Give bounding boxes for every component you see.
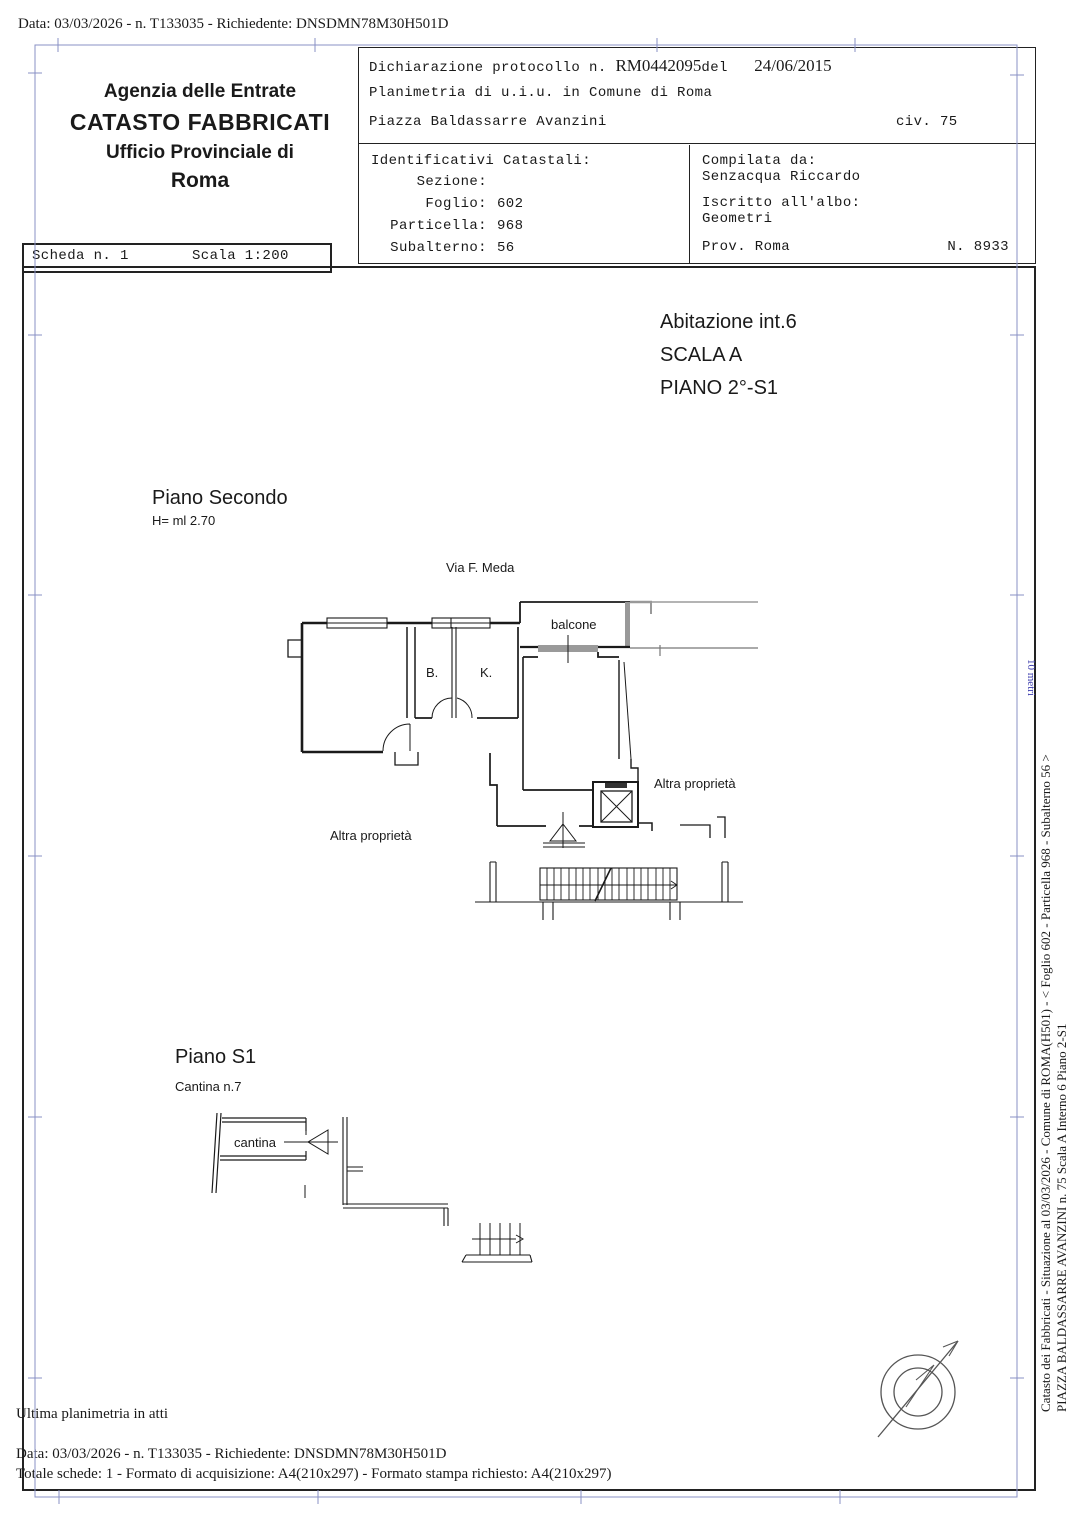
wall	[212, 1113, 221, 1193]
agency-line2: CATASTO FABBRICATI	[40, 106, 360, 139]
wall	[490, 862, 496, 902]
pianoS1-title: Piano S1	[175, 1046, 256, 1069]
sezione-label: Sezione:	[359, 171, 487, 193]
side-margin-line2: PIAZZA BALDASSARRE AVANZINI n. 75 Scala …	[1054, 634, 1070, 1412]
request-info-bottom: Data: 03/03/2026 - n. T133035 - Richiede…	[16, 1446, 447, 1463]
wall	[523, 652, 619, 657]
cantina-door-icon	[284, 1129, 338, 1154]
unit-title-line1: Abitazione int.6	[660, 306, 797, 339]
wall	[722, 862, 728, 902]
compilata-prov: Prov. Roma	[702, 239, 790, 255]
wall	[347, 1167, 363, 1171]
agency-line3: Ufficio Provinciale di	[40, 139, 360, 167]
ruler-scale-label: 10 metri	[1025, 659, 1037, 723]
wall	[631, 759, 638, 782]
cadastral-document-page: Data: 03/03/2026 - n. T133035 - Richiede…	[0, 0, 1086, 1536]
side-margin-text: Catasto dei Fabbricati - Situazione al 0…	[1038, 634, 1070, 1412]
protocol-line2: Planimetria di u.i.u. in Comune di Roma	[369, 85, 712, 101]
identificativi-title: Identificativi Catastali:	[359, 145, 689, 171]
totale-schede-line: Totale schede: 1 - Formato di acquisizio…	[16, 1466, 612, 1483]
wall	[407, 627, 415, 718]
identificativi-row-foglio: Foglio: 602	[359, 193, 689, 215]
protocol-line1: Dichiarazione protocollo n. RM0442095del…	[369, 56, 832, 76]
wall	[343, 1117, 347, 1205]
protocol-civ: civ. 75	[896, 114, 958, 130]
protocol-box: Dichiarazione protocollo n. RM0442095del…	[358, 47, 1036, 264]
unit-title-line3: PIANO 2°-S1	[660, 372, 797, 405]
identificativi-row-particella: Particella: 968	[359, 215, 689, 237]
cantina-label: cantina	[234, 1135, 277, 1150]
agency-line1: Agenzia delle Entrate	[40, 78, 360, 106]
wall	[395, 752, 418, 765]
compilata-title: Compilata da:	[702, 153, 1009, 169]
wall	[543, 902, 680, 920]
altra-proprieta-right-label: Altra proprietà	[654, 776, 736, 791]
wall-gray	[630, 645, 758, 656]
protocol-declaration: Dichiarazione protocollo n. RM0442095del…	[359, 48, 1035, 144]
piano2-title: Piano Secondo	[152, 487, 288, 510]
compilata-box: Compilata da: Senzacqua Riccardo Iscritt…	[690, 145, 1035, 264]
elevator-icon	[593, 782, 638, 827]
wall	[624, 662, 631, 759]
protocol-label: Dichiarazione protocollo n.	[369, 60, 607, 76]
altra-proprieta-left-label: Altra proprietà	[330, 828, 412, 843]
wall	[452, 627, 456, 718]
pianoS1-floorplan: cantina	[210, 1105, 540, 1275]
compilata-num: N. 8933	[947, 239, 1009, 255]
wall	[444, 1208, 448, 1226]
wall	[680, 817, 725, 838]
wall-gray	[625, 602, 630, 647]
wall	[288, 640, 302, 657]
agency-line4: Roma	[40, 166, 360, 196]
identificativi-row-subalterno: Subalterno: 56	[359, 237, 689, 259]
sezione-value	[487, 171, 497, 193]
north-arrow-icon	[870, 1335, 980, 1450]
request-info-top: Data: 03/03/2026 - n. T133035 - Richiede…	[18, 16, 449, 33]
room-k-label: K.	[480, 665, 492, 680]
balcone-label: balcone	[551, 617, 597, 632]
foglio-label: Foglio:	[359, 193, 487, 215]
entrance-door-icon	[543, 812, 585, 848]
piano2-floorplan: Via F. Meda	[280, 555, 760, 955]
wall	[220, 1156, 306, 1160]
subalterno-label: Subalterno:	[359, 237, 487, 259]
protocol-del: del	[701, 60, 727, 76]
wall	[343, 1204, 448, 1208]
wall	[638, 823, 652, 831]
piano2-height: H= ml 2.70	[152, 513, 215, 528]
subalterno-value: 56	[487, 237, 515, 259]
compilata-albo: Geometri	[702, 211, 1009, 227]
compilata-name: Senzacqua Riccardo	[702, 169, 1009, 185]
door-arc-icon	[383, 724, 410, 751]
unit-title-line2: SCALA A	[660, 339, 797, 372]
protocol-number: RM0442095	[615, 56, 701, 75]
wall	[222, 1118, 306, 1122]
identificativi-box: Identificativi Catastali: Sezione: Fogli…	[359, 145, 690, 264]
protocol-street: Piazza Baldassarre Avanzini	[369, 114, 607, 130]
protocol-date: 24/06/2015	[754, 56, 831, 75]
scala-label: Scala 1:200	[192, 248, 289, 264]
particella-value: 968	[487, 215, 523, 237]
wall	[490, 753, 497, 826]
stairs-S1-icon	[462, 1223, 532, 1262]
particella-label: Particella:	[359, 215, 487, 237]
identificativi-row-sezione: Sezione:	[359, 171, 689, 193]
staircase-icon	[540, 868, 677, 901]
ultima-note: Ultima planimetria in atti	[16, 1406, 168, 1423]
pianoS1-subtitle: Cantina n.7	[175, 1079, 242, 1094]
compilata-albo-label: Iscritto all'albo:	[702, 195, 1009, 211]
agency-header: Agenzia delle Entrate CATASTO FABBRICATI…	[40, 78, 360, 197]
room-b-label: B.	[426, 665, 438, 680]
street-label: Via F. Meda	[446, 560, 515, 575]
side-margin-line1: Catasto dei Fabbricati - Situazione al 0…	[1038, 634, 1054, 1412]
foglio-value: 602	[487, 193, 523, 215]
scheda-label: Scheda n. 1	[32, 248, 129, 264]
unit-title: Abitazione int.6 SCALA A PIANO 2°-S1	[660, 306, 797, 405]
